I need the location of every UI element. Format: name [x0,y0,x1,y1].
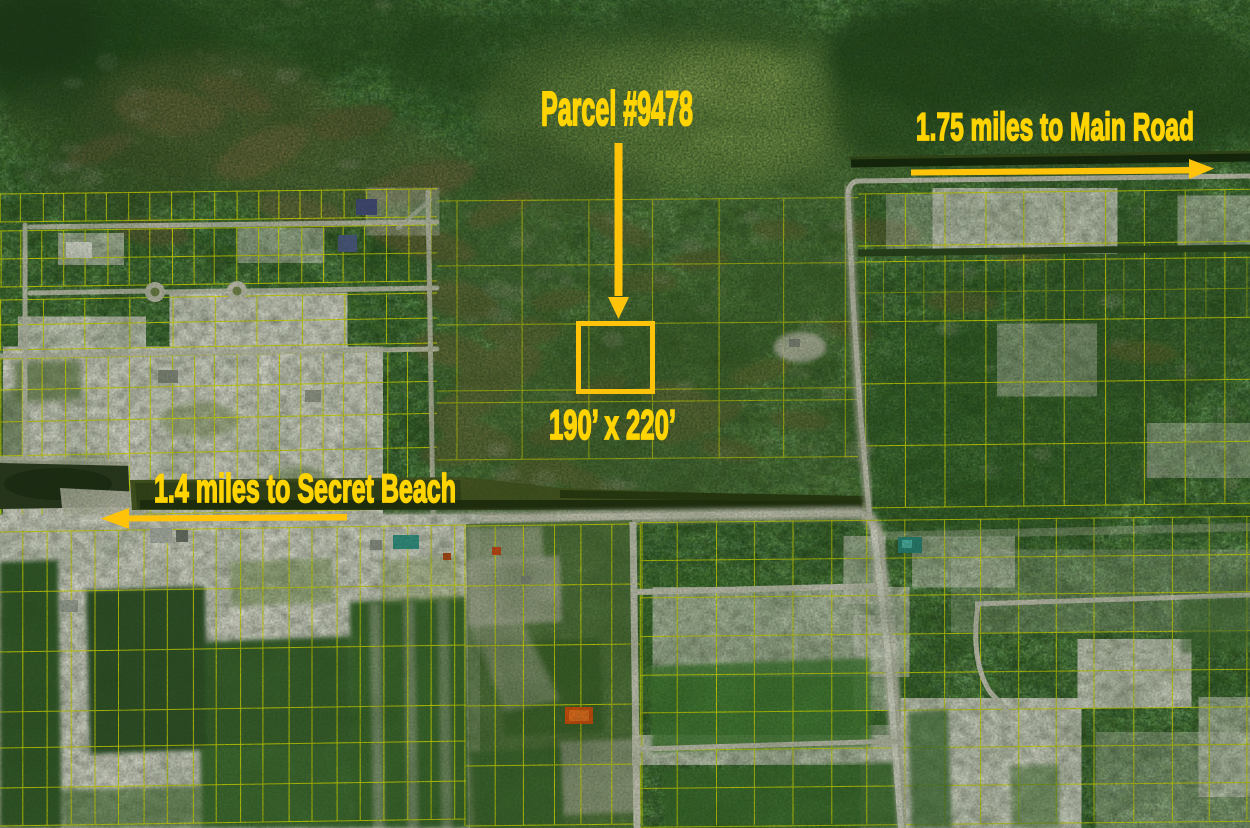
svg-text:1.75 miles to Main Road: 1.75 miles to Main Road [916,106,1194,149]
svg-text:Parcel #9478: Parcel #9478 [541,83,693,136]
svg-text:190’ x 220’: 190’ x 220’ [549,401,676,448]
svg-text:1.4 miles to Secret Beach: 1.4 miles to Secret Beach [154,467,456,511]
